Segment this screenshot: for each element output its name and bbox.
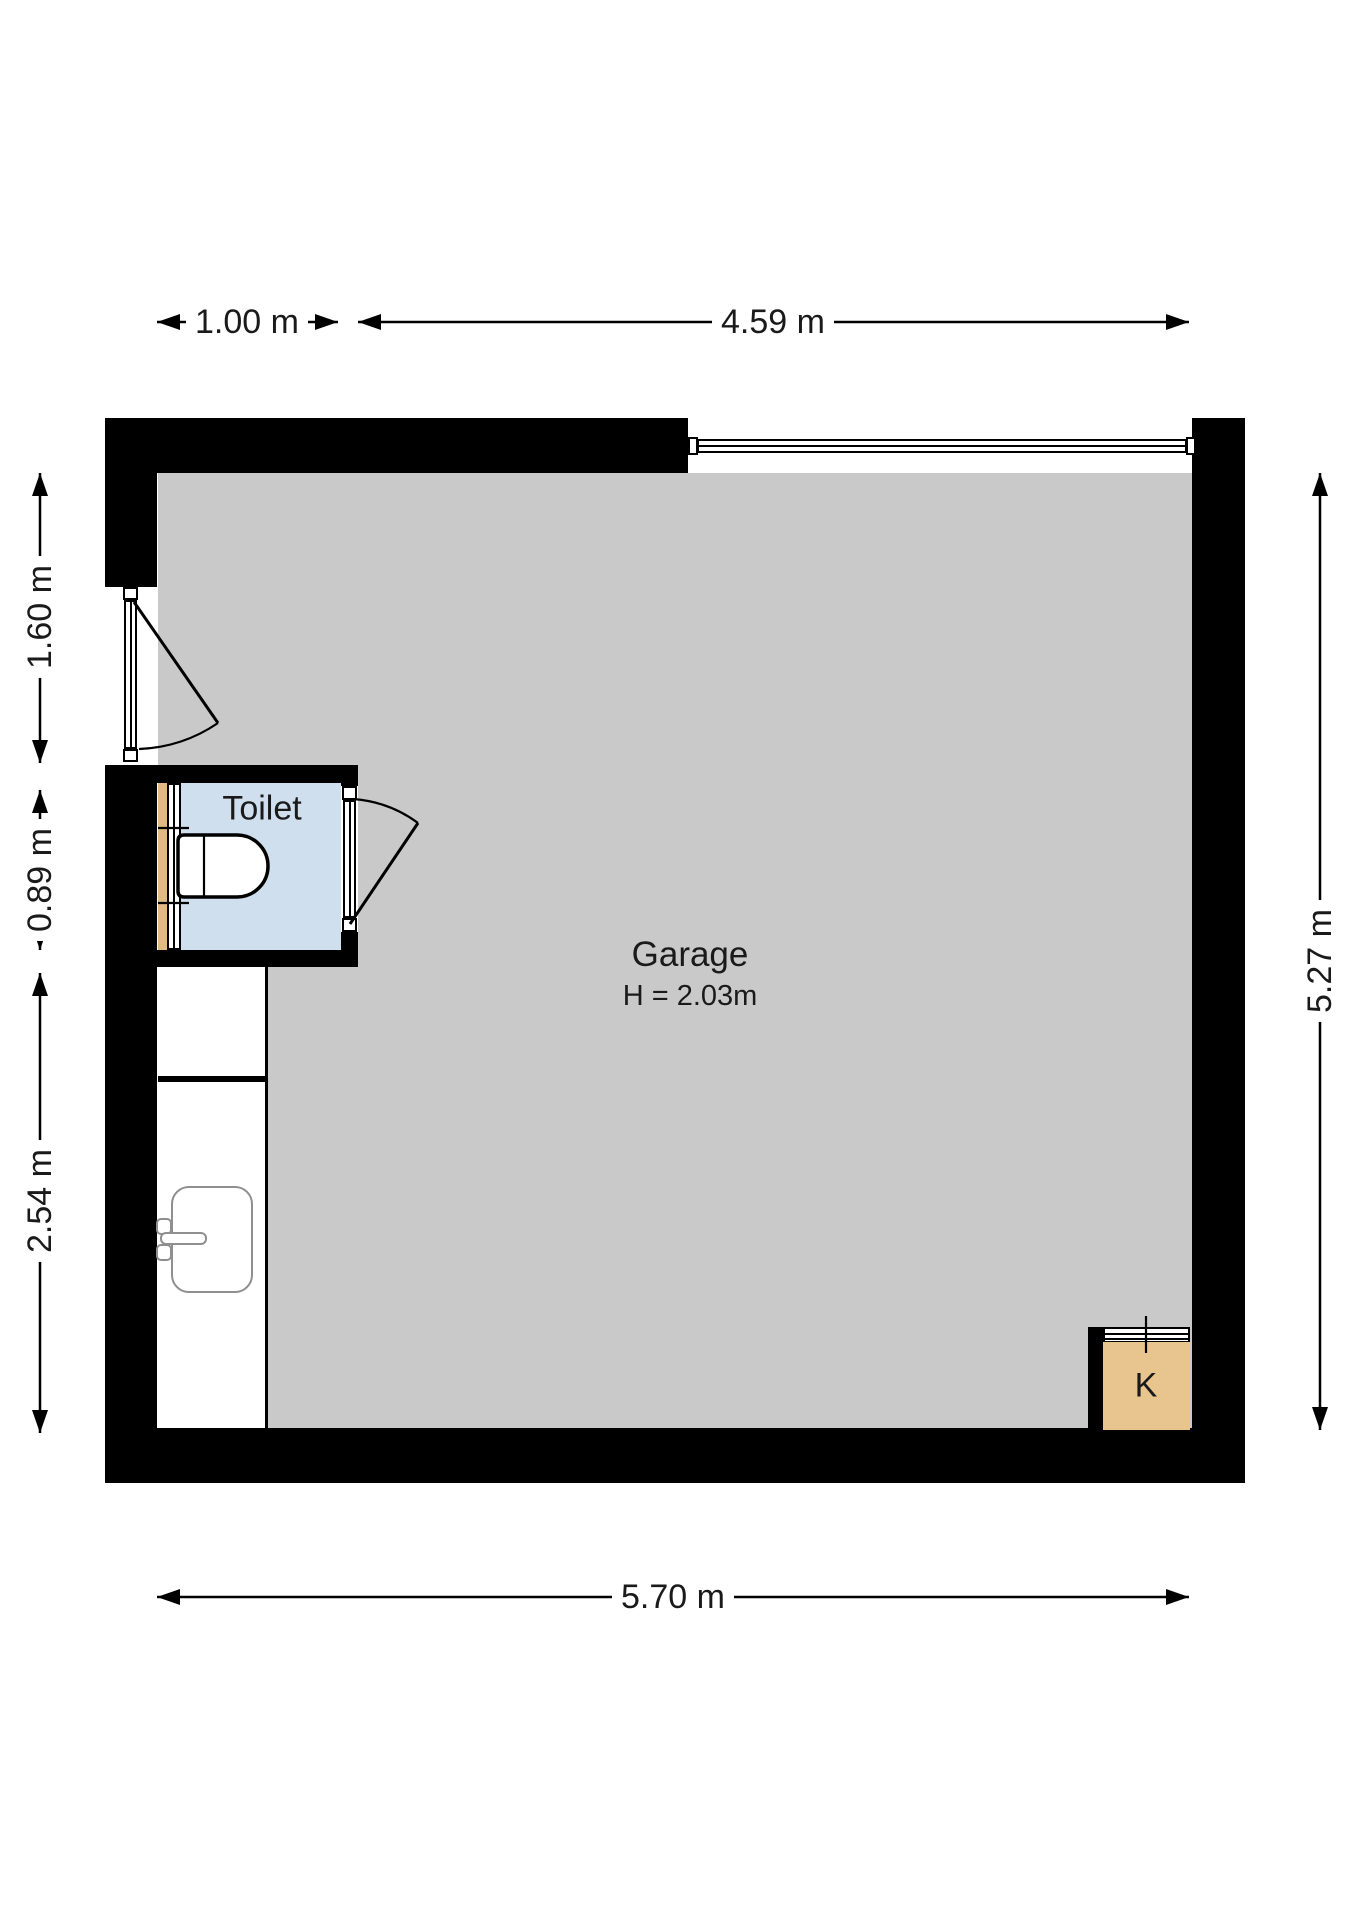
wall-left-lower: [105, 765, 157, 1428]
toilet-window: [167, 783, 181, 950]
toilet-wall-bottom: [105, 950, 358, 967]
garage-door-jamb-right: [1186, 437, 1196, 455]
closet-label: K: [1135, 1367, 1158, 1404]
toilet-window-sill: [158, 783, 167, 950]
nook-edge-wall: [265, 967, 268, 1428]
dim-label-left-2: 0.89 m: [21, 819, 59, 941]
dim-label-left-1: 1.60 m: [21, 556, 59, 678]
dim-label-top-1: 1.00 m: [186, 303, 308, 341]
wall-top: [105, 418, 688, 473]
toilet-door-jamb-bottom: [342, 918, 357, 932]
dim-label-right-1: 5.27 m: [1301, 900, 1339, 1022]
wall-right: [1192, 418, 1245, 1483]
toilet-wall-top: [105, 765, 358, 783]
entry-door-jamb-top: [123, 587, 138, 600]
dim-label-left-3: 2.54 m: [21, 1140, 59, 1262]
garage-height-label: H = 2.03m: [623, 981, 758, 1013]
entry-door-leaf-closed: [124, 600, 137, 749]
toilet-door-leaf-closed: [343, 800, 356, 918]
toilet-door-jamb-top: [342, 786, 357, 800]
closet-wall-stub: [1088, 1327, 1103, 1430]
toilet-room-label: Toilet: [222, 790, 301, 827]
entry-door-jamb-bottom: [123, 749, 138, 762]
dim-label-bottom-1: 5.70 m: [612, 1578, 734, 1616]
garage-door: [697, 439, 1187, 453]
floorplan-canvas: Garage H = 2.03m Toilet K 1.00 m 4.59 m …: [0, 0, 1358, 1920]
wall-bottom: [105, 1428, 1245, 1483]
closet-vent-grille: [1103, 1327, 1190, 1343]
service-nook: [158, 967, 268, 1428]
nook-divider-wall: [158, 1076, 268, 1082]
wall-left-upper: [105, 418, 157, 587]
dim-label-top-2: 4.59 m: [712, 303, 834, 341]
garage-room-label: Garage: [632, 936, 749, 975]
